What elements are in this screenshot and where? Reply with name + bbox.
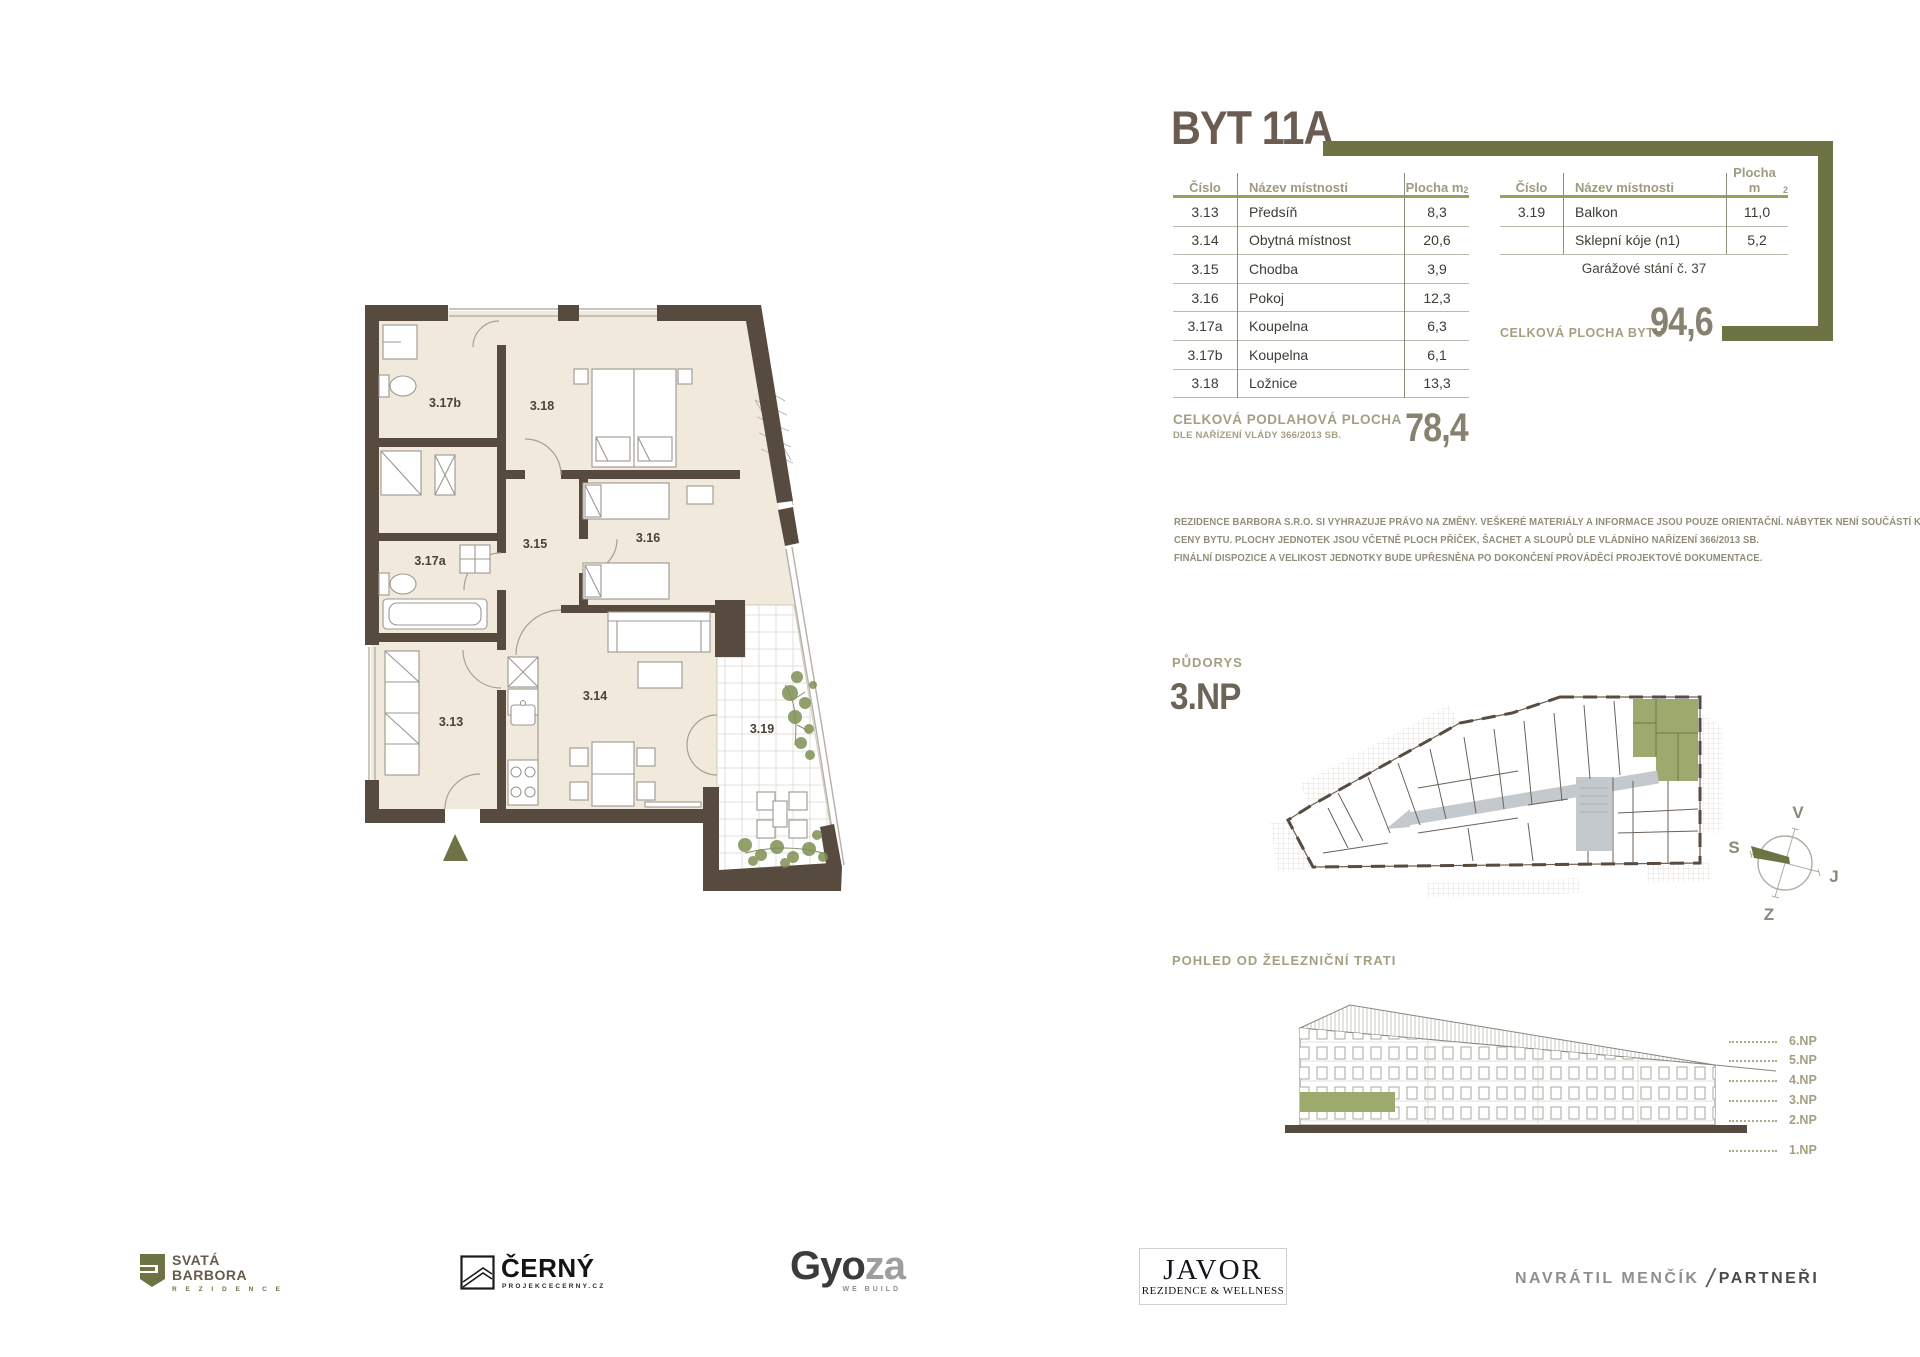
room-label-316: 3.16 [636, 531, 660, 545]
table-row: 3.19Balkon11,0 [1500, 198, 1788, 227]
entry-arrow [443, 834, 468, 861]
room-label-318: 3.18 [530, 399, 554, 413]
cerny-sub: PROJEKCECERNY.CZ [502, 1283, 605, 1290]
logo-svata-barbora: SVATÁ BARBORA R E Z I D E N C E [137, 1253, 284, 1293]
compass-letters: V S J Z [1728, 803, 1838, 924]
room-label-317b: 3.17b [429, 396, 461, 410]
header-nazev: Název místnosti [1563, 173, 1726, 195]
barbora-line2: BARBORA [172, 1268, 284, 1283]
site-plan-floor: 3.NP [1170, 676, 1240, 718]
table-row: 3.17aKoupelna6,3 [1173, 312, 1469, 341]
svata-barbora-icon [137, 1253, 167, 1289]
header-nazev: Název místnosti [1237, 173, 1405, 195]
table-row: Sklepní kóje (n1)5,2 [1500, 227, 1788, 256]
floor-label-2np: 2.NP [1789, 1113, 1817, 1127]
compass: V S J Z [1712, 778, 1862, 938]
compass-z: Z [1764, 905, 1774, 924]
table-divider [1237, 173, 1238, 398]
room-label-314: 3.14 [583, 689, 607, 703]
accent-bar-right [1818, 141, 1833, 341]
room-label-313: 3.13 [439, 715, 463, 729]
table-row: 3.13Předsíň8,3 [1173, 198, 1469, 227]
leader-1np [1729, 1150, 1777, 1152]
apartment-floor-plan: 3.17b 3.18 3.15 3.16 3.17a 3.13 3.14 3.1… [365, 305, 885, 905]
table-row: 3.17bKoupelna6,1 [1173, 341, 1469, 370]
garage-note: Garážové stání č. 37 [1500, 255, 1788, 281]
logo-cerny: ČERNÝ PROJEKCECERNY.CZ [460, 1255, 605, 1290]
header-plocha: Plocha m2 [1726, 173, 1788, 195]
javor-sub: REZIDENCE & WELLNESS [1142, 1285, 1284, 1297]
javor-name: JAVOR [1163, 1256, 1263, 1284]
disclaimer-line: CENY BYTU. PLOCHY JEDNOTEK JSOU VČETNĚ P… [1174, 532, 1920, 550]
floor-label-1np: 1.NP [1789, 1143, 1817, 1157]
page-title: BYT 11A [1171, 100, 1333, 155]
room-label-317a: 3.17a [414, 554, 446, 568]
room-table-header: Číslo Název místnosti Plocha m2 [1173, 173, 1469, 195]
floor-area-label: CELKOVÁ PODLAHOVÁ PLOCHA [1173, 412, 1402, 427]
unit-area-value: 94,6 [1650, 300, 1713, 345]
table-divider [1563, 173, 1564, 254]
accent-bar-corner [1722, 326, 1833, 341]
disclaimer-line: FINÁLNÍ DISPOZICE A VELIKOST JEDNOTKY BU… [1174, 550, 1920, 568]
accent-bar-top [1323, 141, 1833, 156]
elevation-label: POHLED OD ŽELEZNIČNÍ TRATI [1172, 953, 1396, 968]
room-table: Číslo Název místnosti Plocha m2 3.13Před… [1173, 173, 1469, 398]
table-row: 3.15Chodba3,9 [1173, 255, 1469, 284]
room-label-315: 3.15 [523, 537, 547, 551]
highlighted-floor-strip [1300, 1092, 1395, 1112]
header-cislo: Číslo [1173, 173, 1237, 195]
leader-5np [1729, 1060, 1777, 1062]
compass-v: V [1792, 803, 1804, 822]
logo-gyoza: Gyoza WE BUILD [790, 1249, 905, 1293]
compass-s: S [1728, 838, 1739, 857]
logo-navratil-mencik: NAVRÁTIL MENČÍK / PARTNEŘI [1515, 1263, 1819, 1294]
roof-overhang [1715, 1065, 1776, 1071]
disclaimer-line: REZIDENCE BARBORA S.R.O. SI VYHRAZUJE PR… [1174, 514, 1920, 532]
floor-label-3np: 3.NP [1789, 1093, 1817, 1107]
floor-label-6np: 6.NP [1789, 1034, 1817, 1048]
room-label-319: 3.19 [750, 722, 774, 736]
extras-table: Číslo Název místnosti Plocha m2 3.19Balk… [1500, 173, 1788, 281]
floor-label-4np: 4.NP [1789, 1073, 1817, 1087]
leader-4np [1729, 1080, 1777, 1082]
cerny-icon [460, 1255, 495, 1290]
floor-label-5np: 5.NP [1789, 1053, 1817, 1067]
javor-box: JAVOR REZIDENCE & WELLNESS [1139, 1248, 1287, 1305]
building-elevation [1278, 983, 1788, 1148]
table-divider [1726, 173, 1727, 254]
barbora-line1: SVATÁ [172, 1253, 284, 1268]
cerny-name: ČERNÝ [501, 1255, 605, 1281]
leader-2np [1729, 1120, 1777, 1122]
compass-j: J [1829, 867, 1838, 886]
navratil-partners: PARTNEŘI [1719, 1270, 1820, 1288]
header-cislo: Číslo [1500, 173, 1563, 195]
ground-bar [1285, 1125, 1747, 1133]
extras-table-header: Číslo Název místnosti Plocha m2 [1500, 173, 1788, 195]
table-row: 3.18Ložnice13,3 [1173, 370, 1469, 399]
compass-needle [1751, 846, 1790, 864]
leader-3np [1729, 1100, 1777, 1102]
floor-area-value: 78,4 [1405, 406, 1468, 451]
floor-area-sublabel: DLE NAŘÍZENÍ VLÁDY 366/2013 SB. [1173, 430, 1341, 441]
site-plan-label: PŮDORYS [1172, 655, 1243, 670]
barbora-sub: R E Z I D E N C E [172, 1286, 284, 1293]
gyoza-dark: Gyo [790, 1244, 865, 1288]
table-row: 3.16Pokoj12,3 [1173, 284, 1469, 313]
navratil-slash: / [1704, 1263, 1718, 1294]
building-site-plan [1268, 693, 1773, 938]
navratil-name: NAVRÁTIL MENČÍK [1515, 1270, 1699, 1288]
logo-javor: JAVOR REZIDENCE & WELLNESS [1139, 1248, 1287, 1305]
leader-6np [1729, 1041, 1777, 1043]
header-plocha: Plocha m2 [1405, 173, 1469, 195]
disclaimer: REZIDENCE BARBORA S.R.O. SI VYHRAZUJE PR… [1174, 514, 1920, 568]
table-divider [1404, 173, 1405, 398]
table-row: 3.14Obytná místnost20,6 [1173, 227, 1469, 256]
gyoza-light: za [865, 1244, 905, 1288]
apartment-sheet: { "title": "BYT 11A", "room_table": { "c… [0, 0, 1920, 1357]
unit-area-label: CELKOVÁ PLOCHA BYTU [1500, 326, 1664, 340]
